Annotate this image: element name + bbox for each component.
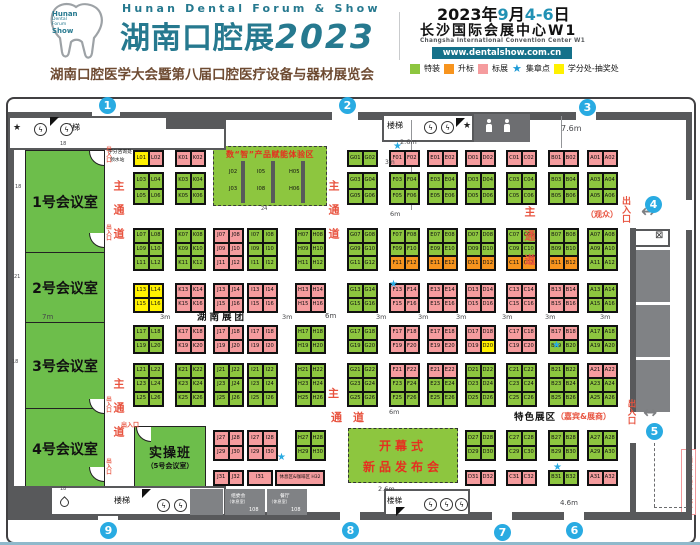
- booth-G07: G07: [348, 229, 363, 243]
- electricity-icon: ϟ: [174, 499, 187, 512]
- booth-K09: K09: [176, 243, 191, 257]
- booth-D01: D01: [466, 151, 481, 166]
- booth-island: J31J32: [213, 470, 244, 486]
- booth-G06: G06: [363, 189, 378, 205]
- booth-D20: D20: [481, 340, 496, 354]
- booth-I21: I21: [248, 364, 263, 378]
- booth-D22: D22: [481, 364, 496, 378]
- booth-island: B03B04B05B06: [548, 172, 579, 205]
- booth-island: E07E08E09E10E11E12: [427, 228, 458, 271]
- booth-F07: F07: [390, 229, 405, 243]
- electricity-icon: ϟ: [440, 498, 453, 511]
- entrance-arrow-icon: ↔: [643, 405, 657, 422]
- tech-zone-title: 数“智”产品赋能体验区: [214, 149, 326, 160]
- booth-E17: E17: [428, 326, 443, 340]
- booth-A21: A21: [588, 364, 603, 378]
- booth-H06: H06: [289, 186, 300, 192]
- floor-plan: 1号会议室2号会议室3号会议室4号会议室 数“智”产品赋能体验区 J02J03I…: [0, 0, 700, 545]
- booth-A13: A13: [588, 284, 603, 298]
- booth-F23: F23: [390, 378, 405, 392]
- electricity-icon: ϟ: [60, 123, 73, 136]
- map-label: 出入口: [104, 458, 112, 475]
- booth-H29: H29: [296, 446, 311, 461]
- booth-C32: C32: [522, 471, 537, 485]
- booth-F14: F14: [405, 284, 420, 298]
- booth-island: I13I14I15I16: [247, 283, 278, 313]
- booth-B09: B09: [549, 243, 564, 257]
- wall-segment: [512, 512, 564, 520]
- booth-F16: F16: [405, 298, 420, 312]
- booth-B06: B06: [564, 189, 579, 205]
- booth-K08: K08: [191, 229, 206, 243]
- booth-J25: J25: [214, 392, 229, 406]
- booth-L01: L01: [134, 151, 149, 166]
- booth-F25: F25: [390, 392, 405, 406]
- booth-C30: C30: [522, 446, 537, 461]
- booth-J21: J21: [214, 364, 229, 378]
- booth-H18: H18: [311, 326, 326, 340]
- booth-E21: E21: [428, 364, 443, 378]
- booth-D06: D06: [481, 189, 496, 205]
- booth-island: C03C04C05C06: [506, 172, 537, 205]
- booth-L02: L02: [149, 151, 164, 166]
- booth-island: E21E22E23E24E25E26: [427, 363, 458, 407]
- map-label: 湖南展团: [197, 309, 247, 323]
- booth-I20: I20: [263, 340, 278, 354]
- booth-K03: K03: [176, 173, 191, 189]
- booth-A07: A07: [588, 229, 603, 243]
- booth-F12: F12: [405, 256, 420, 270]
- booth-island: C31C32: [506, 470, 537, 486]
- booth-J14: J14: [229, 284, 244, 298]
- booth-F21: F21: [390, 364, 405, 378]
- booth-G10: G10: [363, 243, 378, 257]
- booth-D17: D17: [466, 326, 481, 340]
- booth-E12: E12: [443, 256, 458, 270]
- booth-A14: A14: [603, 284, 618, 298]
- booth-A19: A19: [588, 340, 603, 354]
- triangle-marker: [142, 489, 151, 498]
- booth-K17: K17: [176, 326, 191, 340]
- booth-D26: D26: [481, 392, 496, 406]
- map-label: 特色展区: [514, 409, 556, 423]
- gate-8: 8: [342, 522, 359, 539]
- booth-L09: L09: [134, 243, 149, 257]
- booth-I28: I28: [263, 431, 278, 446]
- booth-I13: I13: [248, 284, 263, 298]
- booth-island: D07D08D09D10D11D12: [465, 228, 496, 271]
- map-label: 18: [60, 141, 66, 147]
- booth-H08: H08: [311, 229, 326, 243]
- booth-C14: C14: [522, 284, 537, 298]
- booth-A25: A25: [588, 392, 603, 406]
- booth-I30: I30: [263, 446, 278, 461]
- booth-F22: F22: [405, 364, 420, 378]
- map-block: [474, 114, 530, 142]
- booth-H23: H23: [296, 378, 311, 392]
- booth-island: L21L22L23L24L25L26: [133, 363, 164, 407]
- booth-I23: I23: [248, 378, 263, 392]
- booth-C21: C21: [507, 364, 522, 378]
- booth-K23: K23: [176, 378, 191, 392]
- booth-E14: E14: [443, 284, 458, 298]
- booth-island: H21H22H23H24H25H26: [295, 363, 326, 407]
- conference-room-2: 2号会议室: [26, 253, 104, 323]
- stamp-point-star-icon: ★: [552, 341, 561, 351]
- gate-3: 3: [579, 99, 596, 116]
- map-label: 3m: [545, 313, 555, 321]
- booth-island: C21C22C23C24C25C26: [506, 363, 537, 407]
- booth-A09: A09: [588, 243, 603, 257]
- booth-I05: I05: [257, 169, 265, 175]
- booth-K10: K10: [191, 243, 206, 257]
- booth-island: G07G08G09G10G11G12: [347, 228, 378, 271]
- booth-island: C13C14C15C16: [506, 283, 537, 313]
- booth-E15: E15: [428, 298, 443, 312]
- booth-B03: B03: [549, 173, 564, 189]
- booth-island: A13A14A15A16: [587, 283, 618, 313]
- booth-D27: D27: [466, 431, 481, 446]
- booth-A16: A16: [603, 298, 618, 312]
- booth-G17: G17: [348, 326, 363, 340]
- star-icon: ★: [463, 122, 471, 131]
- booth-J12: J12: [229, 256, 244, 270]
- booth-H20: H20: [311, 340, 326, 354]
- booth-L26: L26: [149, 392, 164, 406]
- booth-J08: J08: [229, 229, 244, 243]
- booth-D21: D21: [466, 364, 481, 378]
- booth-K04: K04: [191, 173, 206, 189]
- booth-H19: H19: [296, 340, 311, 354]
- wall-segment: [166, 116, 226, 129]
- booth-island: I07I08I09I10I11I12: [247, 228, 278, 271]
- booth-G20: G20: [363, 340, 378, 354]
- booth-J17: J17: [214, 326, 229, 340]
- electricity-icon: ϟ: [157, 499, 170, 512]
- booth-A17: A17: [588, 326, 603, 340]
- booth-island: H27H28H29H30: [295, 430, 326, 461]
- booth-L17: L17: [134, 326, 149, 340]
- booth-E02: E02: [443, 151, 458, 166]
- map-label: 楼梯: [387, 495, 402, 506]
- booth-L16: L16: [149, 298, 164, 312]
- booth-A26: A26: [603, 392, 618, 406]
- booth-B29: B29: [549, 446, 564, 461]
- booth-island: L01L02: [133, 150, 164, 167]
- map-label: 6m: [325, 312, 336, 320]
- booth-B23: B23: [549, 378, 564, 392]
- booth-E05: E05: [428, 189, 443, 205]
- booth-B14: B14: [564, 284, 579, 298]
- booth-I22: I22: [263, 364, 278, 378]
- booth-island: B21B22B23B24B25B26: [548, 363, 579, 407]
- booth-B08: B08: [564, 229, 579, 243]
- booth-island: C17C18C19C20: [506, 325, 537, 354]
- booth-J32: J32: [229, 471, 244, 485]
- map-label: 主通道: [110, 180, 126, 252]
- booth-B20: B20: [564, 340, 579, 354]
- map-label: （休息室）: [269, 499, 290, 505]
- booth-B28: B28: [564, 431, 579, 446]
- booth-F05: F05: [390, 189, 405, 205]
- booth-J19: J19: [214, 340, 229, 354]
- map-label: 道: [353, 409, 364, 425]
- closed-cell-icon: ⊠: [655, 231, 663, 241]
- booth-D07: D07: [466, 229, 481, 243]
- booth-L25: L25: [134, 392, 149, 406]
- booth-B05: B05: [549, 189, 564, 205]
- booth-I16: I16: [263, 298, 278, 312]
- map-label: 通: [331, 409, 342, 425]
- booth-K02: K02: [191, 151, 206, 166]
- booth-A08: A08: [603, 229, 618, 243]
- map-label: 3m: [502, 313, 512, 321]
- electricity-icon: ϟ: [424, 498, 437, 511]
- booth-J02: J02: [229, 169, 237, 175]
- stamp-point-star-icon: ★: [277, 453, 286, 463]
- map-label: 出入口: [104, 396, 112, 413]
- booth-D15: D15: [466, 298, 481, 312]
- booth-D23: D23: [466, 378, 481, 392]
- booth-C23: C23: [507, 378, 522, 392]
- booth-K20: K20: [191, 340, 206, 354]
- booth-L12: L12: [149, 256, 164, 270]
- booth-F11: F11: [390, 256, 405, 270]
- booth-E03: E03: [428, 173, 443, 189]
- booth-island: I31: [247, 470, 273, 486]
- restroom-icon: [504, 119, 510, 132]
- restroom-icon: [486, 119, 492, 132]
- exhibition-floor-plan-page: Hunan Dental Forum Show Hunan Dental For…: [0, 0, 700, 545]
- booth-B04: B04: [564, 173, 579, 189]
- booth-island: E03E04E05E06: [427, 172, 458, 205]
- booth-J03: J03: [229, 186, 237, 192]
- booth-island: K01K02: [175, 150, 206, 167]
- booth-K01: K01: [176, 151, 191, 166]
- booth-D11: D11: [466, 256, 481, 270]
- booth-island: B07B08B09B10B11B12: [548, 228, 579, 271]
- practice-room-title: 实操班: [149, 442, 191, 461]
- map-label: 108: [291, 507, 301, 513]
- booth-K24: K24: [191, 378, 206, 392]
- booth-F19: F19: [390, 340, 405, 354]
- booth-J13: J13: [214, 284, 229, 298]
- booth-K06: K06: [191, 189, 206, 205]
- map-label: 楼梯: [387, 120, 403, 131]
- booth-island: D31D32: [465, 470, 496, 486]
- wall-segment: [8, 112, 14, 518]
- booth-A31: A31: [588, 471, 603, 485]
- booth-B15: B15: [549, 298, 564, 312]
- map-label: 3m: [376, 313, 386, 321]
- booth-H16: H16: [311, 298, 326, 312]
- booth-D05: D05: [466, 189, 481, 205]
- tech-experience-zone: 数“智”产品赋能体验区 J02J03I05I08H05H06: [213, 146, 327, 206]
- booth-island: D21D22D23D24D25D26: [465, 363, 496, 407]
- booth-L18: L18: [149, 326, 164, 340]
- map-label: 出入口: [104, 224, 112, 241]
- triangle-marker: [396, 507, 405, 516]
- booth-H09: H09: [296, 243, 311, 257]
- booth-H30: H30: [311, 446, 326, 461]
- booth-G14: G14: [363, 284, 378, 298]
- booth-D32: D32: [481, 471, 496, 485]
- booth-H27: H27: [296, 431, 311, 446]
- map-label: 3m: [418, 313, 428, 321]
- booth-B32: B32: [564, 471, 579, 485]
- star-icon: ★: [13, 124, 21, 133]
- facility-block: [634, 229, 670, 247]
- booth-F24: F24: [405, 378, 420, 392]
- booth-I08: I08: [263, 229, 278, 243]
- booth-G26: G26: [363, 392, 378, 406]
- booth-A02: A02: [603, 151, 618, 166]
- booth-island: A21A22A23A24A25A26: [587, 363, 618, 407]
- map-block: [654, 507, 687, 509]
- booth-F08: F08: [405, 229, 420, 243]
- booth-A04: A04: [603, 173, 618, 189]
- booth-J29: J29: [214, 446, 229, 461]
- booth-E26: E26: [443, 392, 458, 406]
- booth-G01: G01: [348, 151, 363, 166]
- booth-island: A31A32: [587, 470, 618, 486]
- booth-I15: I15: [248, 298, 263, 312]
- tech-zone-divider: [271, 161, 275, 203]
- electricity-icon: ϟ: [424, 121, 437, 134]
- booth-D30: D30: [481, 446, 496, 461]
- booth-L08: L08: [149, 229, 164, 243]
- booth-F10: F10: [405, 243, 420, 257]
- booth-K22: K22: [191, 364, 206, 378]
- booth-I26: I26: [263, 392, 278, 406]
- booth-J20: J20: [229, 340, 244, 354]
- booth-island: 休息区&咖啡区 H32: [275, 470, 325, 486]
- booth-I11: I11: [248, 256, 263, 270]
- booth-C28: C28: [522, 431, 537, 446]
- gate-5: 5: [646, 423, 663, 440]
- booth-I17: I17: [248, 326, 263, 340]
- booth-D29: D29: [466, 446, 481, 461]
- booth-island: D01D02: [465, 150, 496, 167]
- map-label: 7.6m: [561, 124, 582, 133]
- booth-island: D17D18D19D20: [465, 325, 496, 354]
- map-label: 餐厅: [280, 492, 290, 499]
- map-label: 出入口: [619, 196, 632, 223]
- booth-L05: L05: [134, 189, 149, 205]
- booth-L03: L03: [134, 173, 149, 189]
- booth-G22: G22: [363, 364, 378, 378]
- booth-I29: I29: [248, 446, 263, 461]
- booth-C24: C24: [522, 378, 537, 392]
- booth-F26: F26: [405, 392, 420, 406]
- tech-zone-divider: [301, 161, 305, 203]
- booth-E09: E09: [428, 243, 443, 257]
- booth-island: A27A28A29A30: [587, 430, 618, 461]
- map-block: [190, 489, 223, 515]
- booth-B18: B18: [564, 326, 579, 340]
- triangle-marker: [50, 117, 59, 126]
- booth-D31: D31: [466, 471, 481, 485]
- booth-C05: C05: [507, 189, 522, 205]
- map-label: 主通道: [325, 180, 341, 252]
- map-label: 主: [328, 385, 339, 401]
- booth-D03: D03: [466, 173, 481, 189]
- booth-E07: E07: [428, 229, 443, 243]
- booth-K25: K25: [176, 392, 191, 406]
- booth-L04: L04: [149, 173, 164, 189]
- map-label: 108: [249, 507, 259, 513]
- booth-B27: B27: [549, 431, 564, 446]
- booth-G16: G16: [363, 298, 378, 312]
- booth-G05: G05: [348, 189, 363, 205]
- booth-F06: F06: [405, 189, 420, 205]
- booth-H11: H11: [296, 256, 311, 270]
- booth-island: K07K08K09K10K11K12: [175, 228, 206, 271]
- booth-B31: B31: [549, 471, 564, 485]
- conference-room-3: 3号会议室: [26, 323, 104, 409]
- booth-H24: H24: [311, 378, 326, 392]
- booth-A20: A20: [603, 340, 618, 354]
- booth-H21: H21: [296, 364, 311, 378]
- booth-B30: B30: [564, 446, 579, 461]
- booth-L13: L13: [134, 284, 149, 298]
- booth-island: E01E02: [427, 150, 458, 167]
- booth-L11: L11: [134, 256, 149, 270]
- booth-G03: G03: [348, 173, 363, 189]
- wall-segment: [630, 443, 636, 515]
- booth-B02: B02: [564, 151, 579, 166]
- booth-L22: L22: [149, 364, 164, 378]
- booth-island: D27D28D29D30: [465, 430, 496, 461]
- booth-G11: G11: [348, 256, 363, 270]
- wall-segment: [584, 512, 692, 520]
- booth-H22: H22: [311, 364, 326, 378]
- booth-C26: C26: [522, 392, 537, 406]
- booth-I27: I27: [248, 431, 263, 446]
- booth-K14: K14: [191, 284, 206, 298]
- booth-island: H13H14H15H16: [295, 283, 326, 313]
- booth-H28: H28: [311, 431, 326, 446]
- booth-A01: A01: [588, 151, 603, 166]
- map-label: 4.6m: [560, 499, 578, 507]
- booth-G04: G04: [363, 173, 378, 189]
- tech-zone-divider: [241, 161, 245, 203]
- booth-J27: J27: [214, 431, 229, 446]
- map-label: （观众）: [586, 209, 618, 220]
- booth-I14: I14: [263, 284, 278, 298]
- booth-K19: K19: [176, 340, 191, 354]
- booth-A28: A28: [603, 431, 618, 446]
- booth-G15: G15: [348, 298, 363, 312]
- booth-island: F03F04F05F06: [389, 172, 420, 205]
- map-label: 24: [261, 206, 267, 212]
- booth-D08: D08: [481, 229, 496, 243]
- booth-F20: F20: [405, 340, 420, 354]
- opening-line2: 新品发布会: [363, 458, 443, 475]
- booth-island: G13G14G15G16: [347, 283, 378, 313]
- booth-J09: J09: [214, 243, 229, 257]
- booth-G09: G09: [348, 243, 363, 257]
- map-label: 学分咨询处: [108, 148, 132, 155]
- map-label: 3m: [600, 313, 610, 321]
- booth-island: E17E18E19E20: [427, 325, 458, 354]
- map-label: 3m: [282, 313, 292, 321]
- electricity-icon: ϟ: [441, 121, 454, 134]
- booth-island: G01G02: [347, 150, 378, 167]
- booth-J10: J10: [229, 243, 244, 257]
- booth-G21: G21: [348, 364, 363, 378]
- booth-B13: B13: [549, 284, 564, 298]
